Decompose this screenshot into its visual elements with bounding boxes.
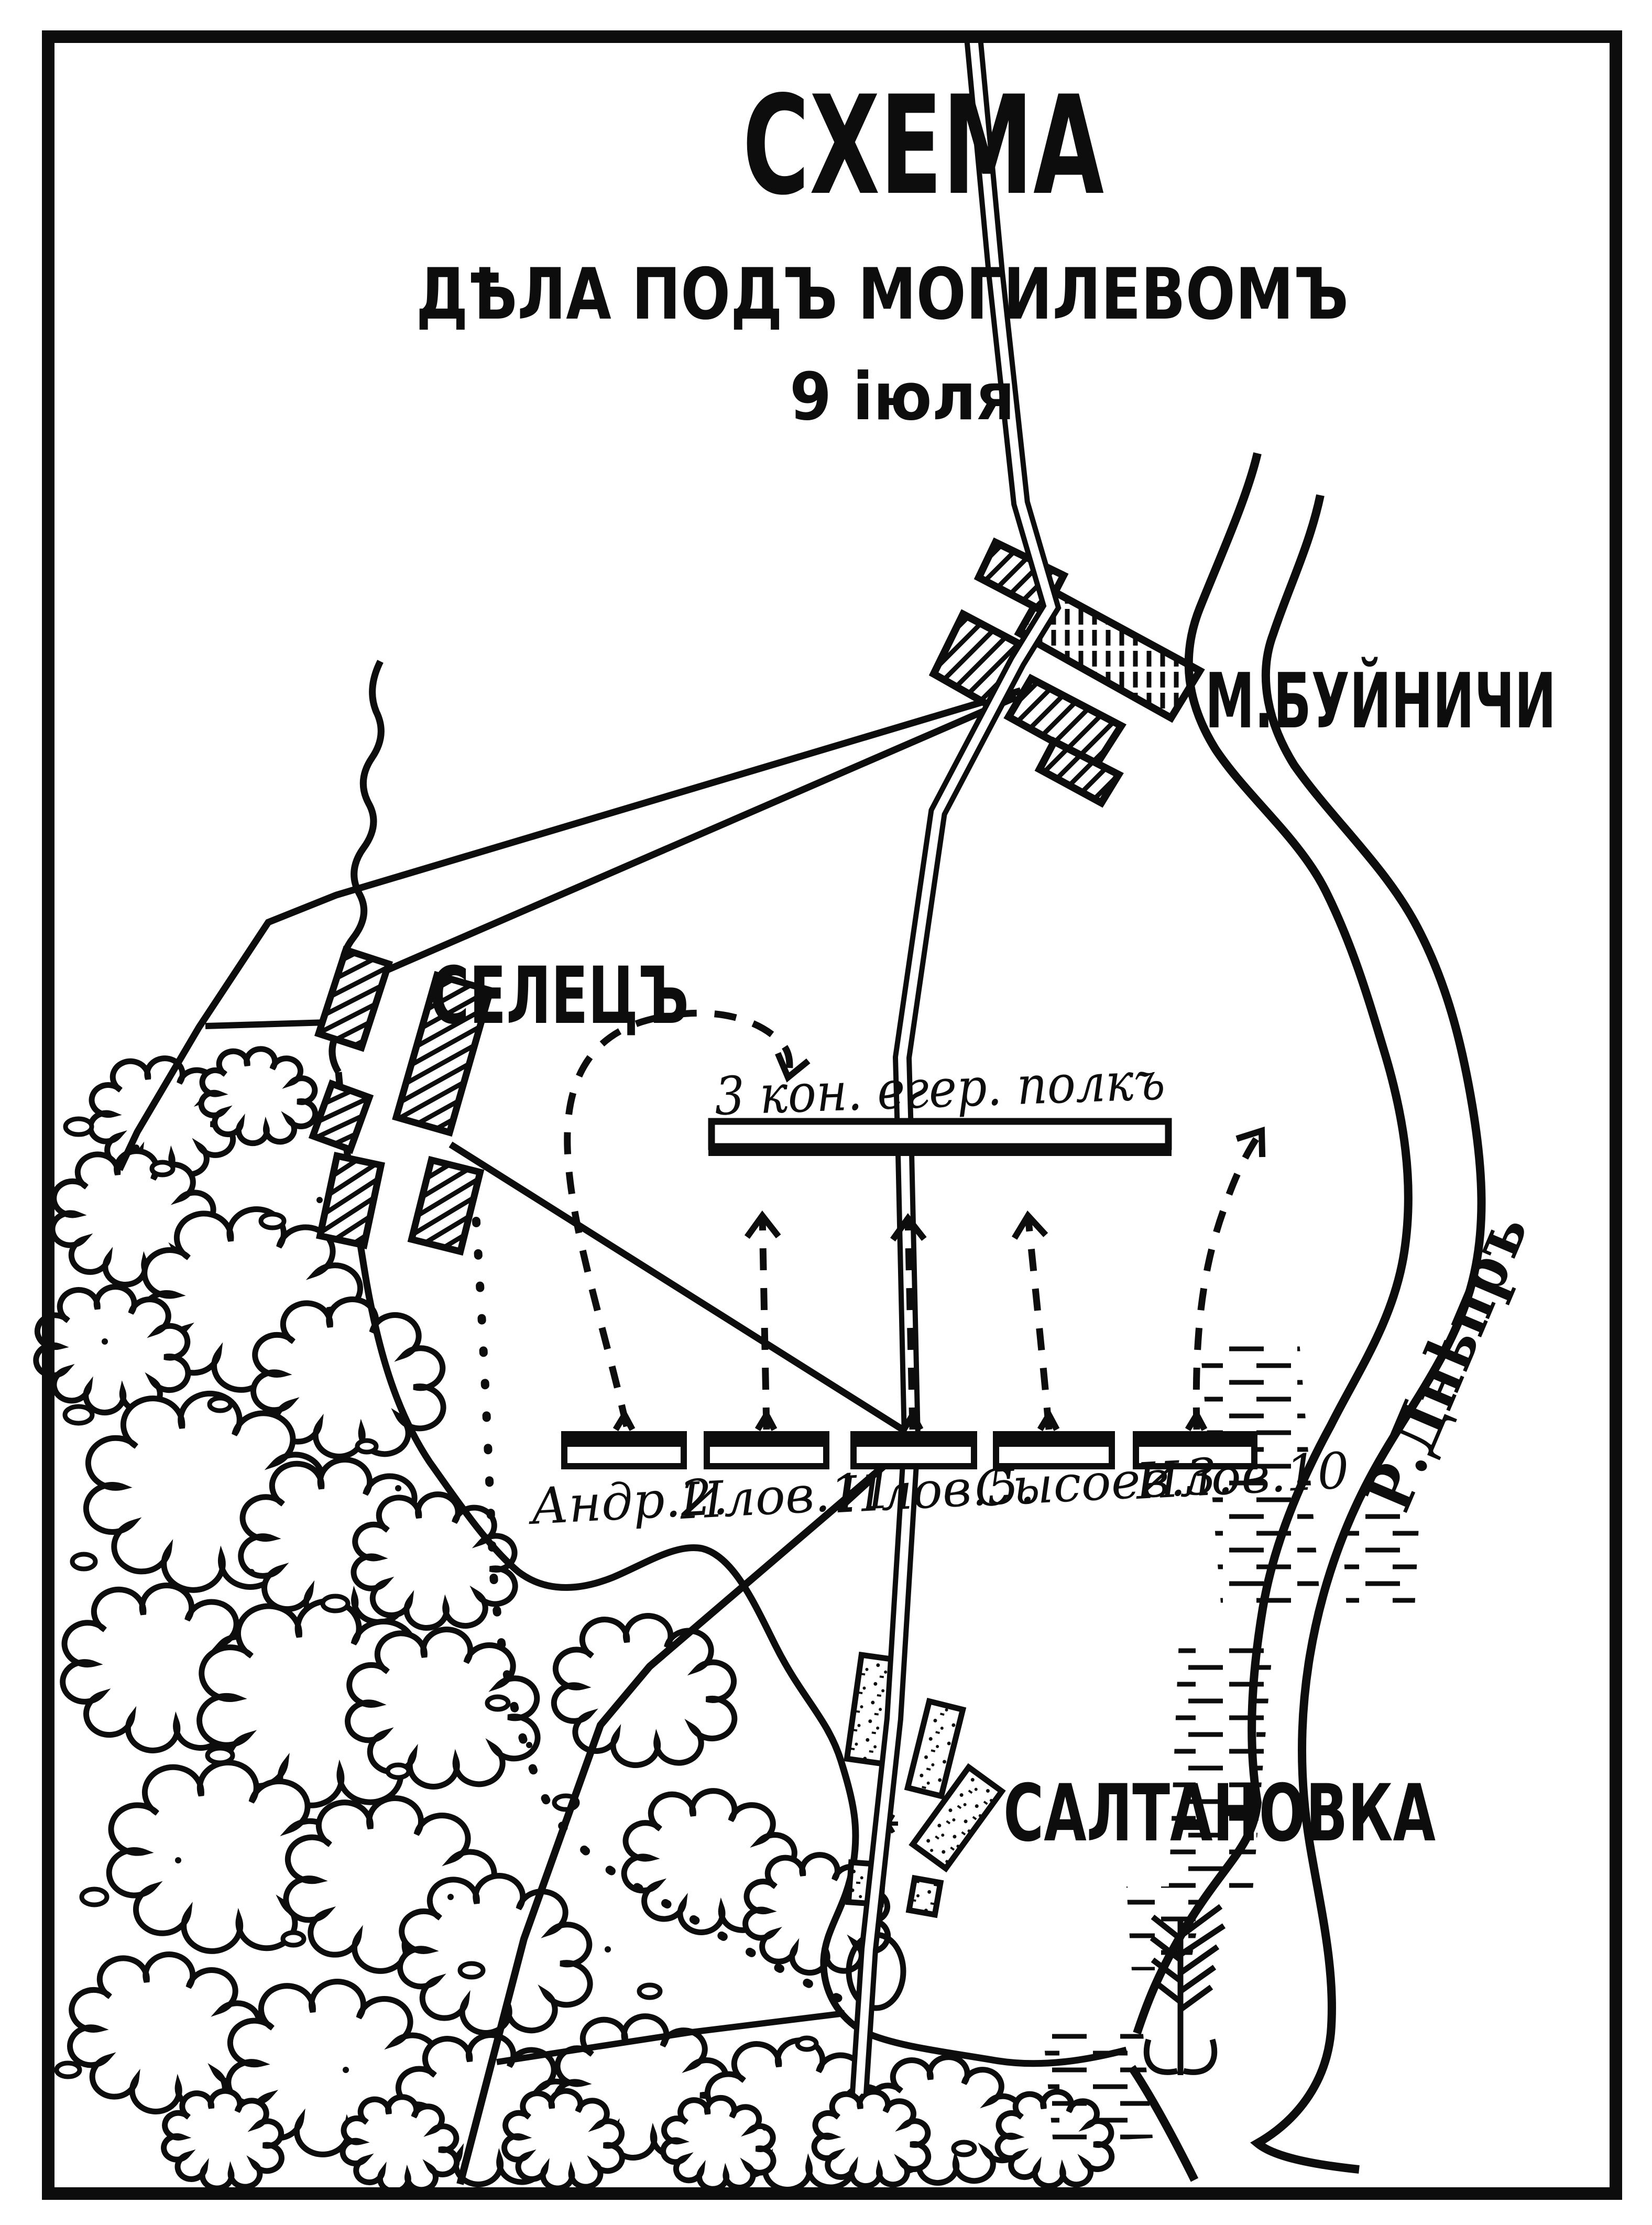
page-subtitle: ДѢЛА ПОДЪ МОГИЛЕВОМЪ <box>416 253 1349 335</box>
date-line: 9 іюля <box>790 359 1015 435</box>
place-label-saltanovka: САЛТАНОВКА <box>1003 1768 1436 1859</box>
troop-bar <box>561 1437 687 1466</box>
place-label-selets: СЕЛЕЦЪ <box>430 951 689 1042</box>
page-title: СХЕМА <box>742 67 1104 225</box>
unit-label-cossack: Илов.10 <box>1133 1442 1350 1511</box>
troop-bar <box>704 1437 829 1466</box>
horse-jaeger-bar <box>708 1121 1172 1150</box>
place-label-buinichi: М.БУЙНИЧИ <box>1205 657 1556 746</box>
battle-map: СХЕМА ДѢЛА ПОДЪ МОГИЛЕВОМЪ 9 іюля М.БУЙН… <box>0 0 1652 2225</box>
